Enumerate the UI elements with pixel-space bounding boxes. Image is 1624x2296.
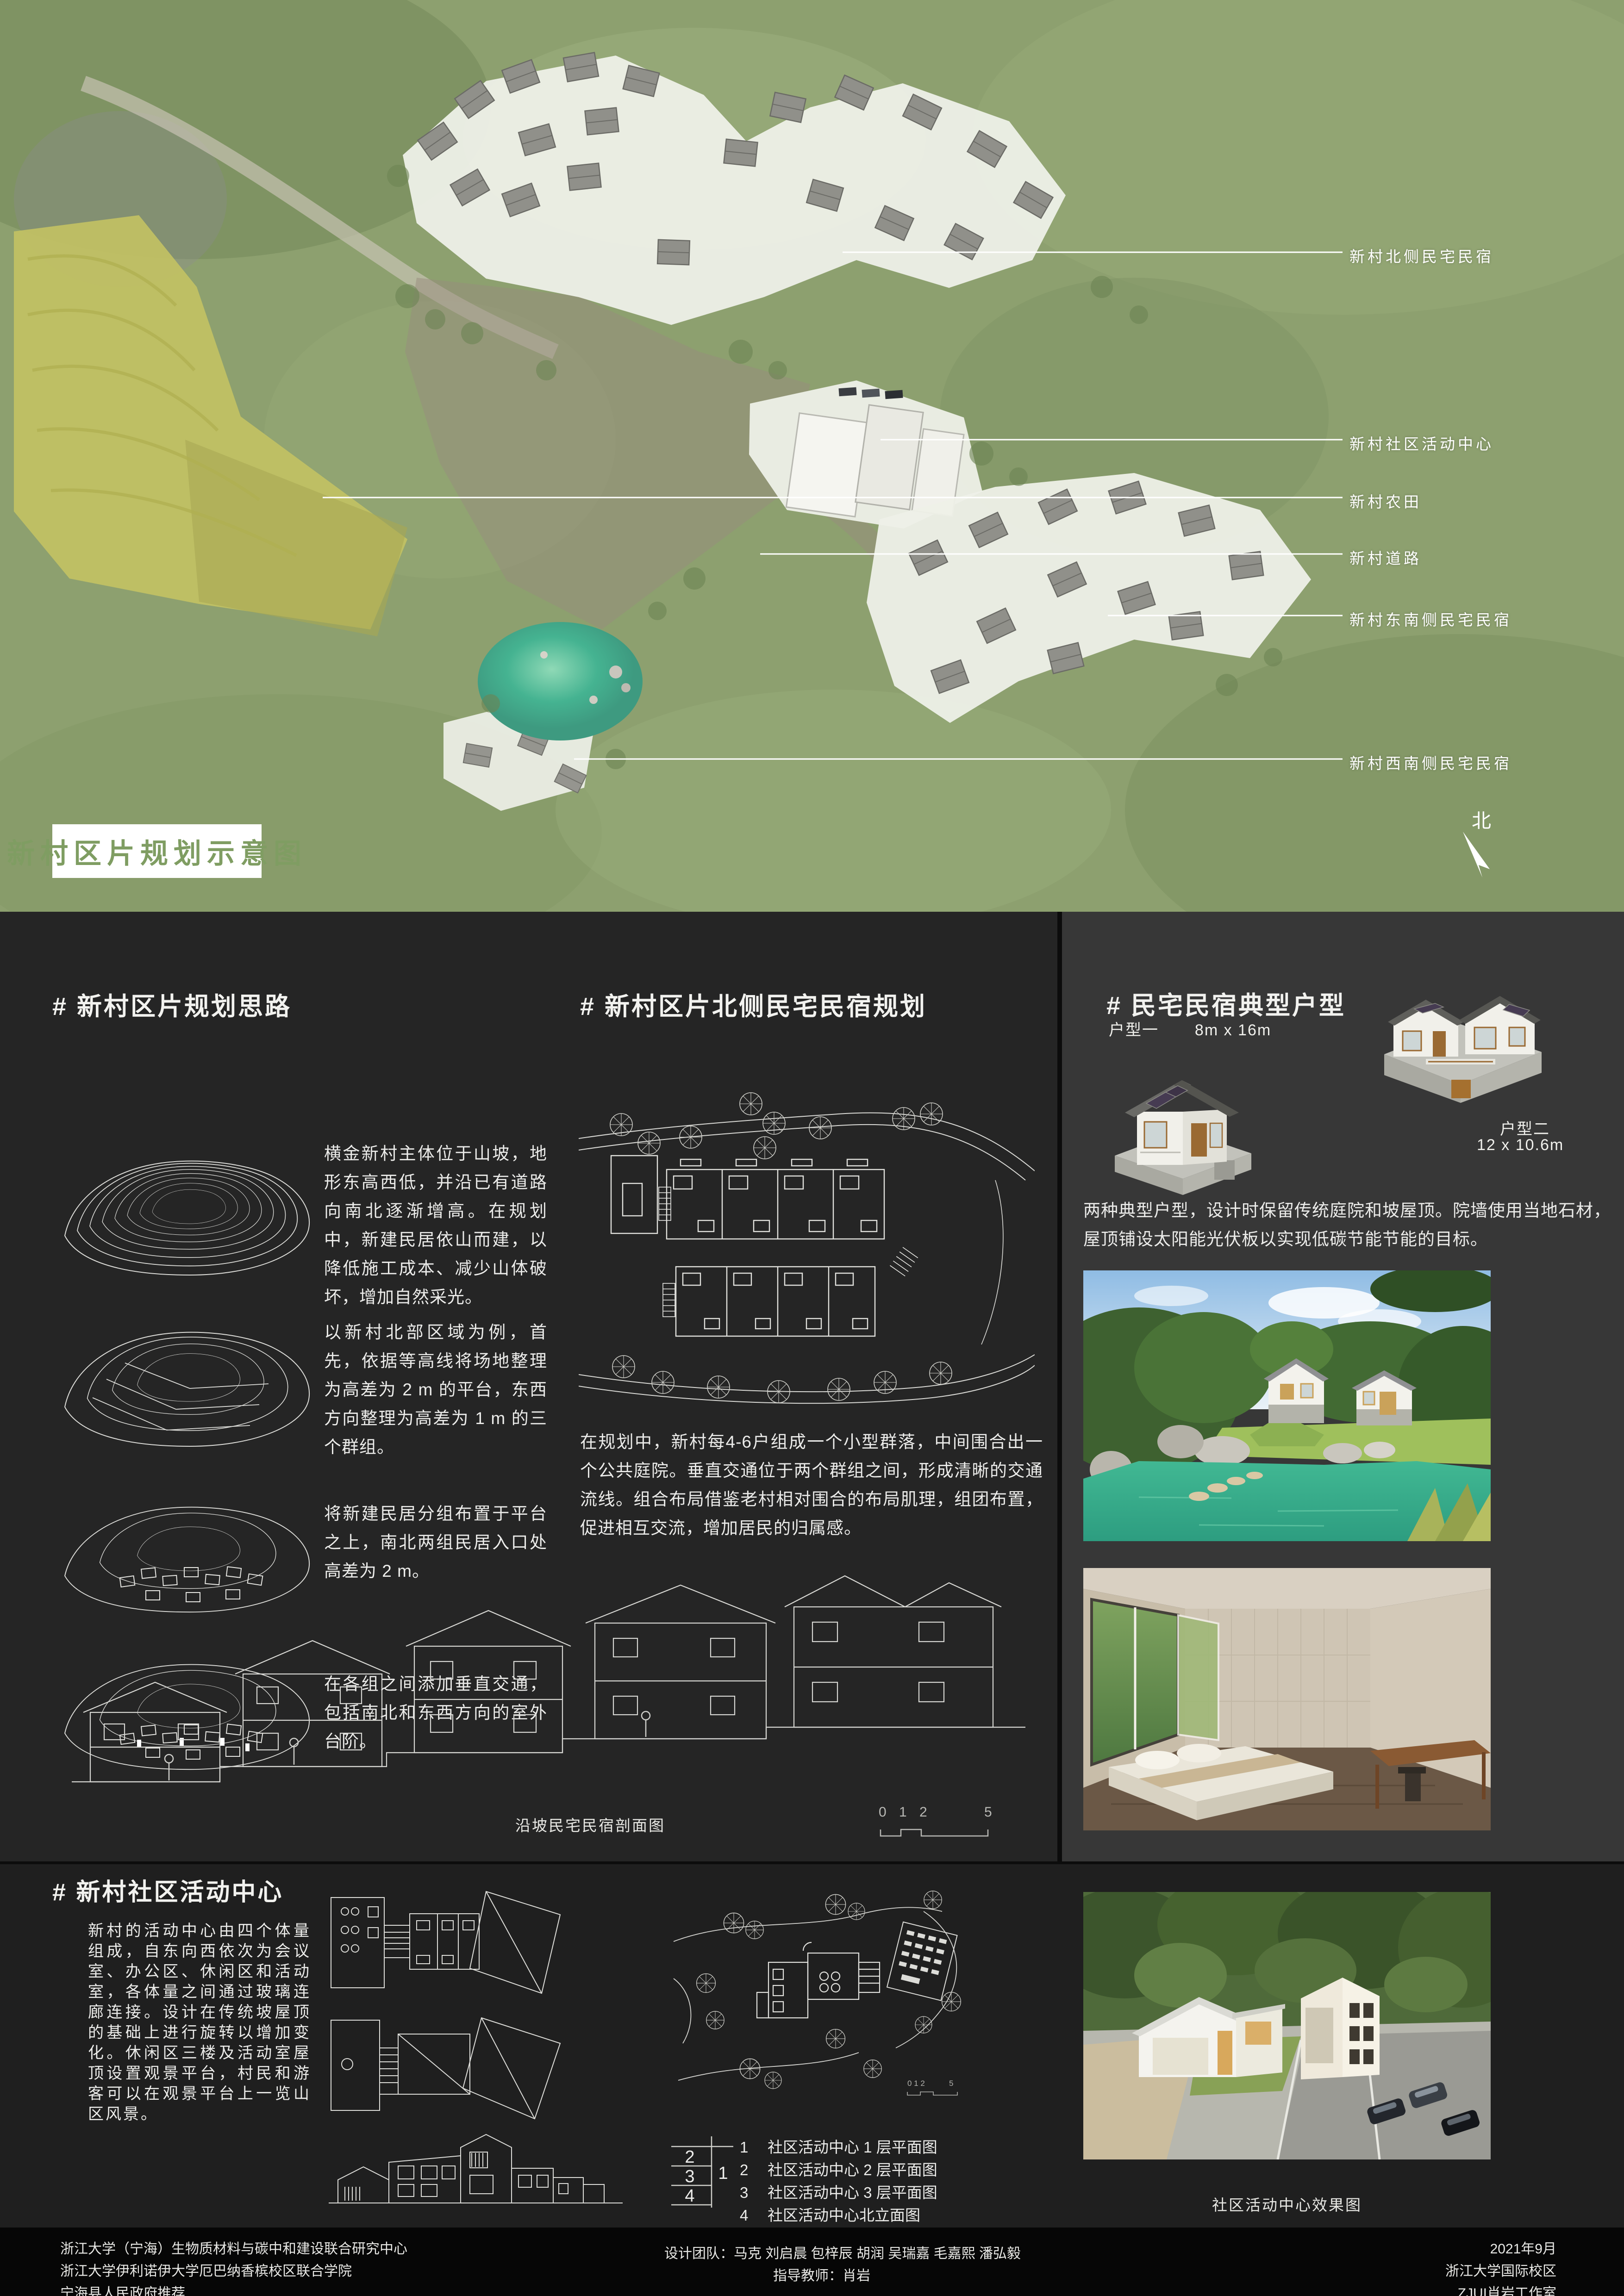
typology-heading: # 民宅民宿典型户型 (1106, 985, 1346, 1021)
planning-paragraph-1: 横金新村主体位于山坡，地形东高西低，并沿已有道路向南北逐渐增高。在规划中，新建民… (324, 1139, 547, 1312)
scale-tick-1: 1 (899, 1804, 907, 1820)
key-number-4: 4 (685, 2186, 694, 2206)
footer-left-block: 浙江大学（宁海）生物质材料与碳中和建设联合研究中心 浙江大学伊利诺伊大学厄巴纳香… (60, 2238, 407, 2296)
scale-tick-0: 0 (879, 1804, 887, 1820)
type2-label: 户型二 (1500, 1116, 1550, 1139)
key-number-3: 3 (685, 2167, 694, 2186)
map-label-southwest-housing: 新村西南侧民宅民宿 (1349, 751, 1512, 773)
render-trees (1083, 1892, 1491, 2012)
community-plan-2 (326, 1886, 567, 1999)
legend-row-3: 3社区活动中心 3 层平面图 (740, 2181, 937, 2204)
key-number-1: 1 (718, 2164, 728, 2183)
map-title-box: 新村区片规划示意图 (52, 824, 262, 878)
panel-divider (1057, 912, 1062, 1861)
map-label-southeast-housing: 新村东南侧民宅民宿 (1349, 608, 1512, 630)
footer-right-block: 2021年9月 浙江大学国际校区 ZJUI肖岩工作室 (1370, 2238, 1556, 2296)
footer-campus: 浙江大学国际校区 (1370, 2260, 1556, 2283)
community-render-caption: 社区活动中心效果图 (1083, 2193, 1491, 2215)
scale-tick-3: 5 (984, 1804, 992, 1820)
footer-date: 2021年9月 (1370, 2238, 1556, 2260)
legend-row-4: 4社区活动中心北立面图 (740, 2204, 937, 2227)
type1-row: 户型一 8m x 16m (1109, 1017, 1271, 1040)
slope-section-drawing (62, 1548, 1035, 1798)
svg-text:0 1 2: 0 1 2 (907, 2079, 925, 2088)
community-siteplan: 0 1 25 (664, 1886, 972, 2099)
map-label-farmland: 新村农田 (1349, 490, 1422, 512)
footer-left-line-2: 浙江大学伊利诺伊大学厄巴纳香槟校区联合学院 (60, 2260, 407, 2283)
community-elevation (326, 2124, 625, 2210)
north-housing-heading: # 新村区片北侧民宅民宿规划 (580, 986, 927, 1022)
pond-render-photo (1083, 1270, 1491, 1541)
bedroom-render-photo (1083, 1568, 1491, 1830)
masterplan-map: 北 新村北侧民宅民宿 新村社区活动中心 新村农田 新村道路 新村东南侧民宅民宿 … (0, 0, 1624, 912)
house-type2-render (1370, 976, 1553, 1103)
legend-row-2: 2社区活动中心 2 层平面图 (740, 2159, 937, 2181)
community-paragraph: 新村的活动中心由四个体量组成，自东向西依次为会议室、办公区、休闲区和活动室，各体… (88, 1921, 311, 2124)
community-heading: # 新村社区活动中心 (52, 1873, 283, 1907)
scale-bar: 0 1 2 5 (875, 1803, 1000, 1847)
masterplan-illustration: 北 (0, 0, 1624, 912)
poster-root: 北 新村北侧民宅民宿 新村社区活动中心 新村农田 新村道路 新村东南侧民宅民宿 … (0, 0, 1624, 2296)
type1-size: 8m x 16m (1195, 1021, 1271, 1039)
typology-paragraph: 两种典型户型，设计时保留传统庭院和坡屋顶。院墙使用当地石材，屋顶铺设太阳能光伏板… (1083, 1196, 1611, 1254)
north-housing-paragraph: 在规划中，新村每4-6户组成一个小型群落，中间围合出一个公共庭院。垂直交通位于两… (580, 1428, 1043, 1543)
design-team-line: 设计团队：马克 刘启晨 包梓辰 胡润 吴瑞嘉 毛嘉熙 潘弘毅 (664, 2243, 979, 2265)
map-title: 新村区片规划示意图 (7, 831, 307, 871)
scale-tick-2: 2 (919, 1804, 927, 1820)
drawing-legend: 1社区活动中心 1 层平面图 2社区活动中心 2 层平面图 3社区活动中心 3 … (740, 2136, 937, 2227)
terrace-diagram-1 (51, 1120, 319, 1287)
map-label-north-housing: 新村北侧民宅民宿 (1349, 244, 1494, 267)
footer-studio: ZJUI肖岩工作室 (1370, 2283, 1556, 2296)
footer-left-line-1: 浙江大学（宁海）生物质材料与碳中和建设联合研究中心 (60, 2238, 407, 2260)
type2-size: 12 x 10.6m (1477, 1136, 1564, 1154)
svg-text:5: 5 (949, 2079, 953, 2088)
advisor-line: 指导教师：肖岩 (664, 2265, 979, 2287)
map-label-community-centre: 新村社区活动中心 (1349, 432, 1494, 454)
footer-team-block: 设计团队：马克 刘启晨 包梓辰 胡润 吴瑞嘉 毛嘉熙 潘弘毅 指导教师：肖岩 (664, 2243, 979, 2287)
community-render-photo (1083, 1892, 1491, 2159)
type1-label: 户型一 (1109, 1021, 1159, 1039)
planning-heading: # 新村区片规划思路 (52, 986, 292, 1022)
terrace-diagram-2 (51, 1291, 319, 1458)
drawing-key: 2 3 4 1 (663, 2133, 735, 2211)
house-type1-render (1096, 1061, 1270, 1195)
legend-row-1: 1社区活动中心 1 层平面图 (740, 2136, 937, 2159)
footer-left-line-3: 宁海县人民政府推荐 (60, 2283, 407, 2296)
north-housing-siteplan (579, 1048, 1035, 1405)
section-caption: 沿坡民宅民宿剖面图 (515, 1813, 665, 1836)
north-label: 北 (1472, 810, 1491, 832)
planning-paragraph-2: 以新村北部区域为例，首先，依据等高线将场地整理为高差为 2 m 的平台，东西方向… (324, 1318, 547, 1462)
map-label-road: 新村道路 (1349, 546, 1422, 568)
key-number-2: 2 (685, 2147, 694, 2167)
pond (478, 622, 643, 740)
community-plan-3 (326, 2009, 567, 2122)
scale-figures (165, 1711, 650, 1780)
